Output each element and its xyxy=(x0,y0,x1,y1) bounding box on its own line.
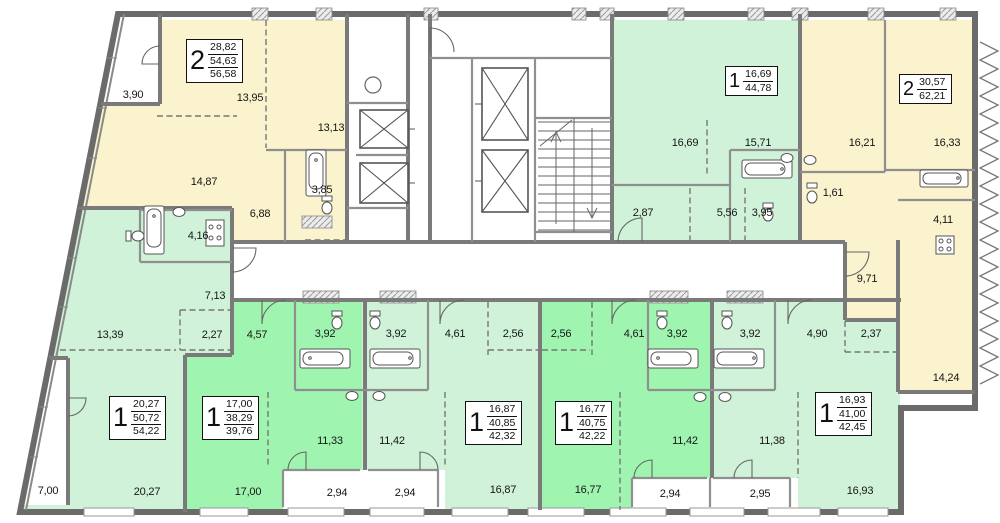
room-area-label: 4,16 xyxy=(188,230,209,242)
toilet-icon xyxy=(126,231,144,241)
room-area-label: 13,95 xyxy=(237,92,264,104)
room-area-label: 7,00 xyxy=(38,485,59,497)
room-area-label: 13,13 xyxy=(318,122,345,134)
apartment-info-box: 1 16,93 41,00 42,45 xyxy=(815,392,872,436)
room-area-label: 16,87 xyxy=(490,484,517,496)
sink-icon xyxy=(719,393,731,402)
sink-icon xyxy=(373,392,385,401)
apartment-rooms-count: 1 xyxy=(206,404,221,431)
room-area-label: 11,42 xyxy=(672,435,698,447)
area-value: 42,22 xyxy=(577,430,607,443)
room-area-label: 3,95 xyxy=(752,207,773,219)
bathtub-icon xyxy=(370,349,420,368)
bathtub-icon xyxy=(144,206,164,254)
room-area-label: 16,21 xyxy=(849,137,876,149)
apartment-info-box: 1 17,00 38,29 39,76 xyxy=(202,396,259,440)
room-area-label: 3,90 xyxy=(123,89,144,101)
toilet-icon xyxy=(657,311,667,329)
room-area-label: 11,42 xyxy=(379,435,405,447)
vent-block xyxy=(302,216,332,228)
room-area-label: 2,37 xyxy=(861,328,882,340)
area-value: 17,00 xyxy=(224,398,254,412)
room-area-label: 14,24 xyxy=(933,372,960,384)
room-area-label: 16,69 xyxy=(672,137,699,149)
apartment-areas: 30,57 62,21 xyxy=(917,76,947,102)
room-area-label: 4,61 xyxy=(445,328,466,340)
area-value: 56,58 xyxy=(208,68,238,81)
apartment-rooms-count: 1 xyxy=(819,400,834,427)
area-value: 40,85 xyxy=(487,417,517,431)
apartment-info-box: 1 20,27 50,72 54,22 xyxy=(109,396,166,440)
area-value: 50,72 xyxy=(131,412,161,426)
balcony-b1 xyxy=(283,470,360,508)
toilet-icon xyxy=(322,196,332,214)
apartment-rooms-count: 1 xyxy=(559,409,574,436)
area-value: 41,00 xyxy=(837,408,867,422)
bathtub-icon xyxy=(300,349,350,368)
apartment-areas: 28,82 54,63 56,58 xyxy=(208,41,238,81)
apartment-info-box: 1 16,87 40,85 42,32 xyxy=(465,401,522,445)
room-area-label: 14,87 xyxy=(191,176,218,188)
toilet-icon xyxy=(370,311,380,329)
room-area-label: 3,92 xyxy=(667,328,688,340)
room-area-label: 6,88 xyxy=(250,208,271,220)
room-area-label: 5,56 xyxy=(717,207,738,219)
sink-icon xyxy=(694,393,706,402)
sink-icon xyxy=(173,208,185,217)
bathtub-icon xyxy=(742,160,792,178)
apartment-info-box: 1 16,77 40,75 42,22 xyxy=(555,401,612,445)
apartment-areas: 17,00 38,29 39,76 xyxy=(224,398,254,438)
apartment-rooms-count: 2 xyxy=(190,47,205,74)
room-area-label: 16,33 xyxy=(934,137,961,149)
area-value: 42,32 xyxy=(487,430,517,443)
toilet-icon xyxy=(332,311,342,329)
elevator-shaft xyxy=(360,68,528,212)
room-area-label: 2,94 xyxy=(660,488,681,500)
toilet-icon xyxy=(807,183,817,203)
room-area-label: 15,71 xyxy=(745,137,772,149)
floor-plan-drawing xyxy=(0,0,1000,523)
staircase xyxy=(538,118,610,232)
floor-plan: 3,90 13,95 13,13 14,87 3,85 6,88 4,16 7,… xyxy=(0,0,1000,523)
room-area-label: 4,61 xyxy=(624,328,645,340)
apartment-info-box: 2 30,57 62,21 xyxy=(899,74,952,104)
area-value: 39,76 xyxy=(224,425,254,438)
apartment-areas: 20,27 50,72 54,22 xyxy=(131,398,161,438)
room-area-label: 2,95 xyxy=(750,488,771,500)
room-area-label: 3,92 xyxy=(740,328,761,340)
apartment-areas: 16,87 40,85 42,32 xyxy=(487,403,517,443)
area-value: 54,22 xyxy=(131,425,161,438)
apartment-info-box: 1 16,69 44,78 xyxy=(725,66,778,96)
apartment-rooms-count: 1 xyxy=(113,404,128,431)
room-area-label: 4,57 xyxy=(247,329,268,341)
room-area-label: 11,38 xyxy=(759,435,785,447)
room-area-label: 2,27 xyxy=(202,329,223,341)
room-area-label: 7,13 xyxy=(205,290,226,302)
area-value: 16,69 xyxy=(743,68,773,82)
room-area-label: 2,94 xyxy=(327,487,348,499)
apartment-rooms-count: 1 xyxy=(729,71,740,91)
room-area-label: 2,94 xyxy=(395,487,416,499)
area-value: 62,21 xyxy=(917,90,947,103)
bathtub-icon xyxy=(920,170,968,187)
room-area-label: 9,71 xyxy=(857,273,878,285)
area-value: 16,93 xyxy=(837,394,867,408)
stairs-up-arrow xyxy=(551,132,561,224)
apartment-info-box: 2 28,82 54,63 56,58 xyxy=(186,39,243,83)
glazing-zigzag xyxy=(980,42,998,384)
apartment-rooms-count: 2 xyxy=(903,79,914,99)
area-value: 28,82 xyxy=(208,41,238,55)
bathtub-icon xyxy=(714,349,764,368)
sink-icon xyxy=(781,154,793,163)
toilet-icon xyxy=(722,311,732,329)
area-value: 16,77 xyxy=(577,403,607,417)
garbage-chute xyxy=(365,77,381,93)
sink-icon xyxy=(346,392,358,401)
room-area-label: 3,92 xyxy=(315,328,336,340)
room-area-label: 2,56 xyxy=(551,328,572,340)
bathtub-icon xyxy=(648,349,698,368)
area-value: 40,75 xyxy=(577,417,607,431)
area-value: 42,45 xyxy=(837,421,867,434)
room-area-label: 4,90 xyxy=(807,328,828,340)
stove-icon xyxy=(936,236,954,254)
apartment-areas: 16,69 44,78 xyxy=(743,68,773,94)
apartment-areas: 16,93 41,00 42,45 xyxy=(837,394,867,434)
room-area-label: 11,33 xyxy=(317,435,343,447)
area-value: 54,63 xyxy=(208,55,238,69)
room-area-label: 16,77 xyxy=(575,484,602,496)
room-area-label: 2,56 xyxy=(503,328,524,340)
room-area-label: 17,00 xyxy=(235,486,262,498)
room-area-label: 4,11 xyxy=(933,214,953,226)
area-value: 16,87 xyxy=(487,403,517,417)
room-area-label: 16,93 xyxy=(847,485,874,497)
room-area-label: 13,39 xyxy=(97,329,124,341)
room-area-label: 1,61 xyxy=(823,187,844,199)
area-value: 44,78 xyxy=(743,82,773,95)
apartment-areas: 16,77 40,75 42,22 xyxy=(577,403,607,443)
area-value: 38,29 xyxy=(224,412,254,426)
area-value: 30,57 xyxy=(917,76,947,90)
stairs-down-arrow xyxy=(587,128,597,218)
room-area-label: 3,92 xyxy=(386,328,407,340)
apartment-rooms-count: 1 xyxy=(469,409,484,436)
room-area-label: 3,85 xyxy=(312,184,333,196)
room-area-label: 20,27 xyxy=(134,486,161,498)
room-area-label: 2,87 xyxy=(633,207,654,219)
area-value: 20,27 xyxy=(131,398,161,412)
sink-icon xyxy=(804,156,816,165)
